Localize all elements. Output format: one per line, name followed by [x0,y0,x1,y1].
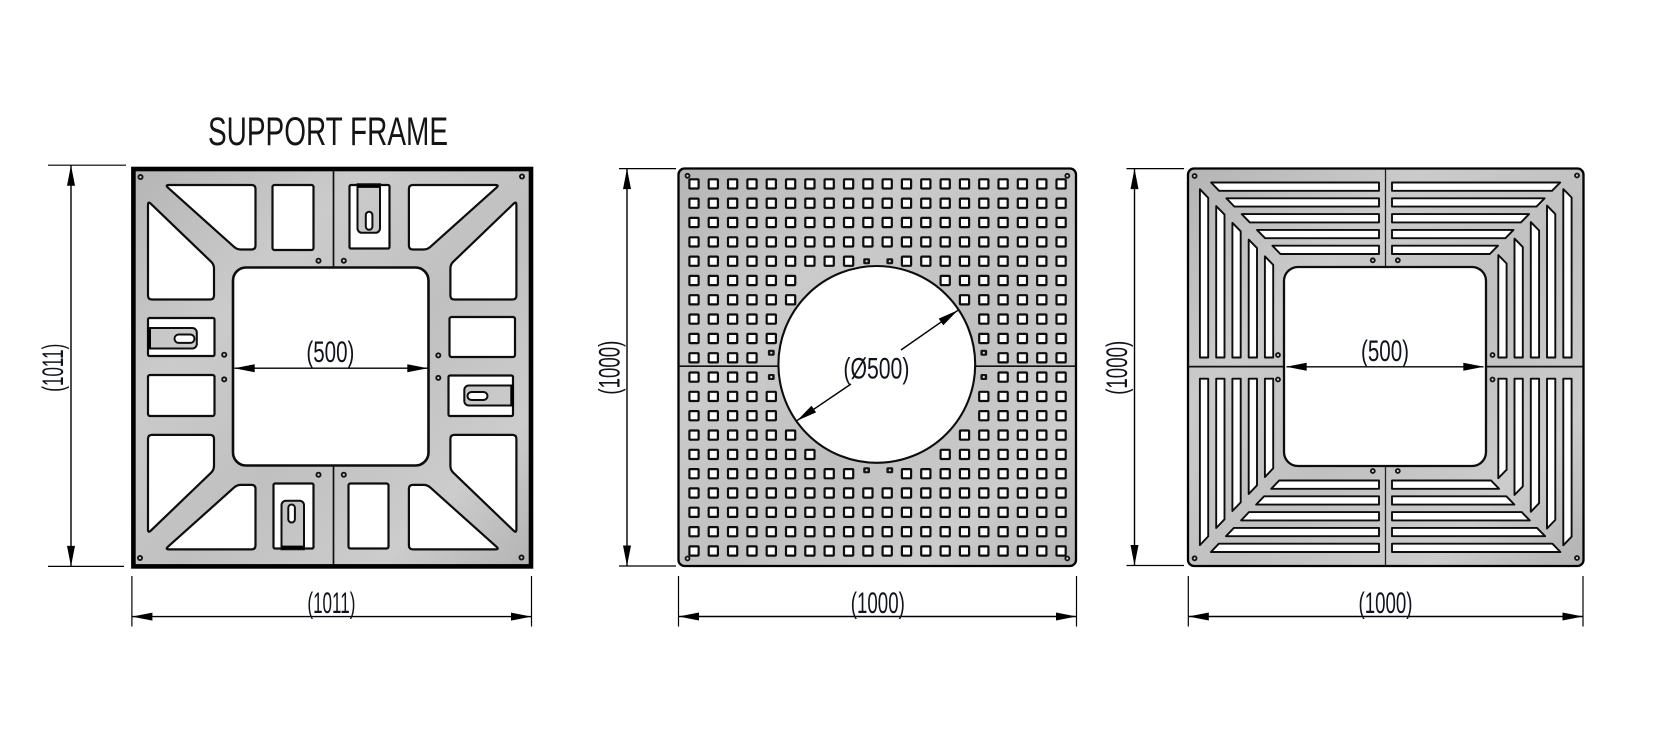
svg-text:(1000): (1000) [1101,341,1134,395]
svg-text:(1000): (1000) [851,587,905,620]
svg-text:(500): (500) [306,336,354,369]
svg-text:(500): (500) [1361,335,1409,368]
svg-text:(1000): (1000) [594,341,627,395]
svg-text:(1000): (1000) [1359,587,1413,620]
svg-text:(Ø500): (Ø500) [843,353,909,386]
svg-text:(1011): (1011) [307,587,355,620]
svg-text:(1011): (1011) [37,344,70,392]
svg-text:SUPPORT FRAME: SUPPORT FRAME [208,110,448,154]
